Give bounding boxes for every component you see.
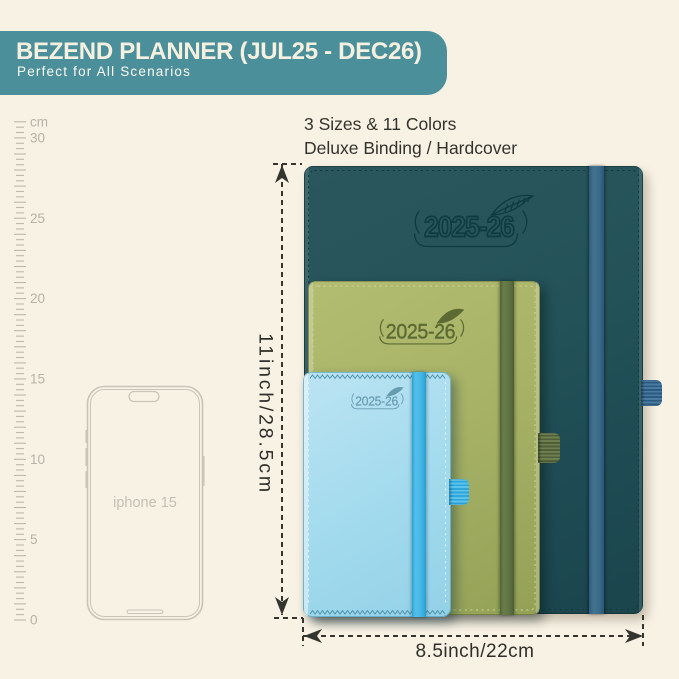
svg-text:2025-26: 2025-26 — [424, 210, 514, 242]
svg-text:0: 0 — [30, 613, 38, 628]
svg-text:2025-26: 2025-26 — [386, 320, 455, 344]
svg-text:5: 5 — [30, 532, 38, 547]
svg-text:11inch/28.5cm: 11inch/28.5cm — [255, 333, 277, 495]
svg-text:10: 10 — [30, 452, 45, 467]
svg-text:25: 25 — [30, 211, 45, 226]
svg-text:iphone 15: iphone 15 — [113, 495, 177, 511]
svg-text:30: 30 — [30, 130, 45, 145]
svg-text:8.5inch/22cm: 8.5inch/22cm — [415, 641, 534, 662]
svg-text:cm: cm — [30, 114, 48, 129]
svg-text:15: 15 — [30, 371, 45, 386]
svg-text:20: 20 — [30, 291, 45, 306]
svg-text:2025-26: 2025-26 — [355, 394, 398, 409]
